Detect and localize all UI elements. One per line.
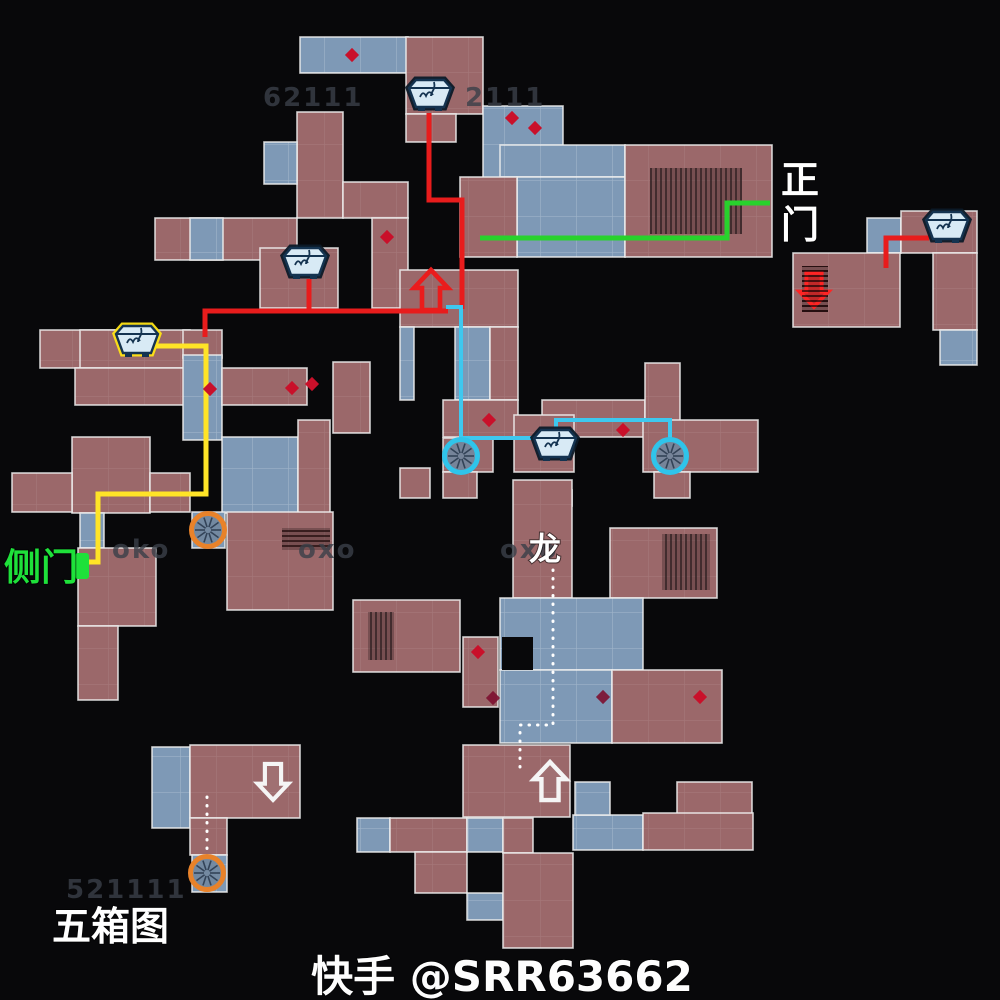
map-room bbox=[500, 670, 612, 743]
vent-fan-icon bbox=[191, 857, 224, 890]
ladder-rungs-icon bbox=[802, 266, 828, 312]
map-room bbox=[190, 218, 223, 260]
loot-crate-icon bbox=[926, 212, 968, 243]
stairs-hatch-icon bbox=[662, 534, 710, 590]
map-room bbox=[503, 818, 533, 853]
map-room bbox=[443, 472, 477, 498]
loot-crate-icon bbox=[284, 248, 326, 279]
map-room bbox=[264, 142, 297, 184]
map-room bbox=[357, 818, 390, 852]
label-side-gate: 侧门 bbox=[4, 546, 78, 589]
label-five-box-map: 五箱图 bbox=[52, 905, 169, 950]
annotated-floor-map: 621112111okooxooxo521111正门侧门龙五箱图快手 @SRR6… bbox=[0, 0, 1000, 1000]
map-room bbox=[400, 468, 430, 498]
map-room bbox=[490, 327, 518, 400]
map-room bbox=[940, 330, 977, 365]
ghost-map-text: 521111 bbox=[66, 875, 187, 905]
ghost-map-text: 2111 bbox=[465, 83, 545, 113]
ghost-map-text: oxo bbox=[298, 535, 357, 565]
map-room bbox=[573, 815, 643, 850]
map-room bbox=[75, 368, 190, 405]
map-room bbox=[503, 853, 573, 948]
stairs-hatch-icon bbox=[368, 612, 394, 660]
map-room bbox=[643, 813, 753, 850]
ghost-map-text: 62111 bbox=[263, 83, 363, 113]
map-room bbox=[612, 670, 722, 743]
map-room bbox=[467, 893, 503, 920]
map-room bbox=[443, 400, 518, 437]
map-room bbox=[333, 362, 370, 433]
map-room bbox=[575, 782, 610, 815]
map-room bbox=[460, 177, 517, 257]
map-room bbox=[415, 852, 467, 893]
vent-fan-icon bbox=[445, 440, 478, 473]
map-room bbox=[72, 437, 150, 513]
loot-crate-icon bbox=[409, 80, 451, 111]
map-room bbox=[152, 747, 190, 828]
label-main-gate: 正门 bbox=[781, 158, 819, 247]
game-map-page: 621112111okooxooxo521111正门侧门龙五箱图快手 @SRR6… bbox=[0, 0, 1000, 1000]
map-room bbox=[12, 473, 72, 512]
vent-fan-icon bbox=[654, 440, 687, 473]
map-room bbox=[298, 420, 330, 513]
room-void bbox=[502, 637, 533, 670]
map-room bbox=[467, 818, 503, 852]
map-room bbox=[400, 327, 414, 400]
loot-crate-icon bbox=[534, 430, 576, 461]
map-room bbox=[390, 818, 467, 852]
map-room bbox=[222, 437, 298, 513]
map-room bbox=[190, 818, 227, 855]
map-room bbox=[517, 177, 625, 257]
loot-crate-icon-highlighted bbox=[116, 326, 158, 357]
map-room bbox=[343, 182, 408, 218]
vent-fan-icon bbox=[192, 514, 225, 547]
ghost-map-text: oko bbox=[112, 535, 170, 565]
map-room bbox=[933, 253, 977, 330]
map-room bbox=[297, 112, 343, 218]
label-dragon: 龙 bbox=[529, 530, 561, 568]
label-watermark: 快手 @SRR63662 bbox=[311, 952, 693, 1000]
map-room bbox=[183, 355, 222, 440]
map-room bbox=[677, 782, 752, 815]
map-room bbox=[500, 145, 625, 177]
map-room bbox=[78, 626, 118, 700]
map-room bbox=[654, 472, 690, 498]
